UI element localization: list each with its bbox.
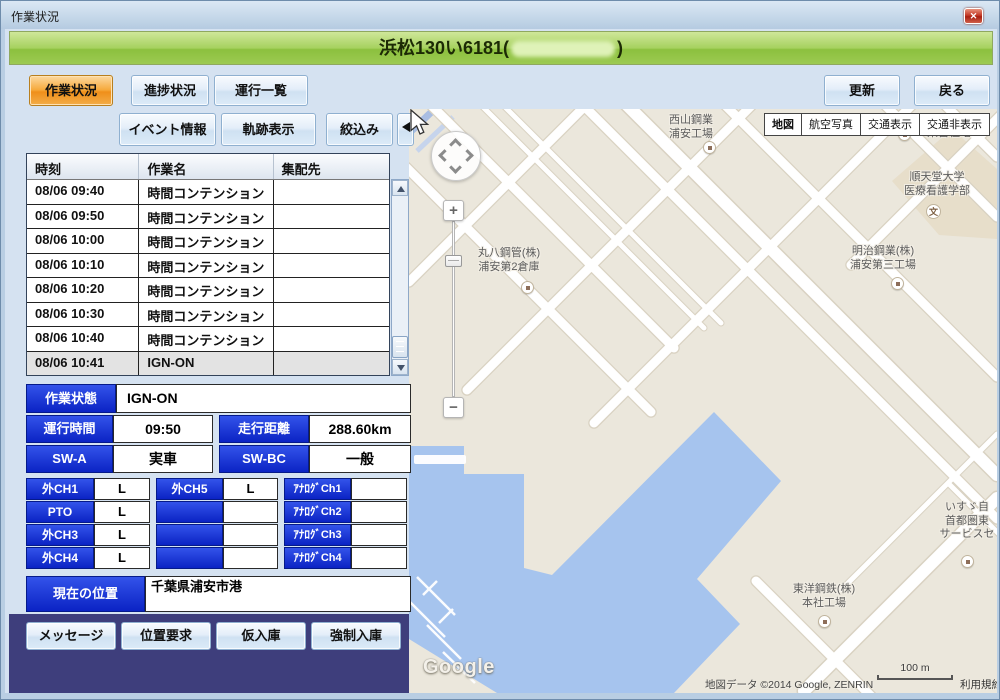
sw-a-value: 実車: [113, 445, 213, 473]
message-button[interactable]: メッセージ: [26, 622, 116, 650]
scale-text: 100 m: [877, 662, 953, 674]
sw-bc-value: 一般: [309, 445, 411, 473]
sw-a-label: SW-A: [26, 445, 113, 473]
table-row[interactable]: 08/06 10:20時間コンテンション: [27, 278, 389, 303]
vehicle-number-suffix: ): [617, 38, 623, 58]
scale-bar: [877, 675, 953, 680]
ch-value: L: [94, 547, 150, 569]
pan-right-icon[interactable]: [461, 149, 474, 162]
poi-icon-nishiyama: [703, 141, 716, 154]
location-value: 千葉県浦安市港: [145, 576, 411, 612]
terms-link[interactable]: 利用規約: [960, 677, 997, 692]
mouse-cursor-icon: [409, 109, 433, 136]
window-content: 浜松130い6181() 作業状況 進捗状況 運行一覧 更新 戻る イベント情報…: [5, 29, 997, 693]
tab-work-status[interactable]: 作業状況: [29, 75, 113, 106]
map-label-nishiyama: 西山鋼業浦安工場: [669, 114, 713, 141]
map-scale: 100 m: [877, 662, 953, 680]
zoom-out-button[interactable]: −: [443, 397, 464, 418]
ch-label: ｱﾅﾛｸﾞCh2: [284, 501, 351, 523]
poi-icon-maruhachi: [521, 281, 534, 294]
map-mode-map[interactable]: 地図: [765, 114, 802, 135]
close-button[interactable]: ✕: [964, 8, 983, 24]
zoom-slider-thumb[interactable]: [445, 255, 462, 267]
ch-label: ｱﾅﾛｸﾞCh3: [284, 524, 351, 546]
event-info-button[interactable]: イベント情報: [119, 113, 216, 146]
map-pan-control[interactable]: [431, 131, 481, 181]
scroll-up-icon: [397, 186, 405, 192]
table-header-row: 時刻 作業名 集配先: [27, 154, 389, 180]
force-storage-button[interactable]: 強制入庫: [311, 622, 401, 650]
temp-storage-button[interactable]: 仮入庫: [216, 622, 306, 650]
poi-icon-meiji: [891, 277, 904, 290]
scroll-up-button[interactable]: [392, 180, 408, 196]
table-row[interactable]: 08/06 10:10時間コンテンション: [27, 254, 389, 279]
pan-left-icon[interactable]: [438, 149, 451, 162]
map-mode-traffic-off[interactable]: 交通非表示: [920, 114, 989, 135]
ch-value: L: [94, 524, 150, 546]
position-request-button[interactable]: 位置要求: [121, 622, 211, 650]
ch-value: L: [94, 478, 150, 500]
map-mode-traffic-on[interactable]: 交通表示: [861, 114, 920, 135]
poi-icon-toyo: [818, 615, 831, 628]
update-button[interactable]: 更新: [824, 75, 900, 106]
masked-text: [511, 41, 615, 57]
location-label: 現在の位置: [26, 576, 145, 612]
ch-label-blank: [156, 524, 223, 546]
ch-label: ｱﾅﾛｸﾞCh4: [284, 547, 351, 569]
ch-label: 外CH4: [26, 547, 94, 569]
map-mode-bar: 地図 航空写真 交通表示 交通非表示: [764, 113, 990, 136]
ch-label-blank: [156, 547, 223, 569]
map-label-juntendo: 順天堂大学医療看護学部: [904, 171, 970, 198]
zoom-in-button[interactable]: +: [443, 200, 464, 221]
distance-value: 288.60km: [309, 415, 411, 443]
map-mode-satellite[interactable]: 航空写真: [802, 114, 861, 135]
google-logo: Google: [423, 656, 495, 679]
tab-progress-status[interactable]: 進捗状況: [131, 75, 209, 106]
filter-button[interactable]: 絞込み: [326, 113, 393, 146]
school-icon: 文: [926, 204, 941, 219]
scrollbar-thumb[interactable]: [392, 336, 408, 358]
ch-value-blank: [223, 524, 278, 546]
ch-value: [351, 501, 407, 523]
ch-value-blank: [223, 501, 278, 523]
sw-bc-label: SW-BC: [219, 445, 309, 473]
scroll-down-icon: [397, 365, 405, 371]
map-label-isuzu: いすゞ自首都圏東サービスセ: [940, 501, 995, 542]
ch-value-blank: [223, 547, 278, 569]
map-copyright: 地図データ ©2014 Google, ZENRIN: [705, 677, 873, 692]
map-label-meiji: 明治鋼業(株)浦安第三工場: [850, 245, 916, 272]
work-state-label: 作業状態: [26, 384, 116, 413]
ch-value: [351, 478, 407, 500]
zoom-slider-track[interactable]: [452, 221, 455, 397]
track-display-button[interactable]: 軌跡表示: [221, 113, 316, 146]
work-state-value: IGN-ON: [116, 384, 411, 413]
map-viewport[interactable]: 地図 航空写真 交通表示 交通非表示 + − 西山鋼業浦安工場 県営住宅: [409, 109, 997, 693]
scroll-down-button[interactable]: [392, 359, 408, 375]
map-label-toyo: 東洋鋼鉄(株)本社工場: [793, 583, 855, 610]
pan-down-icon[interactable]: [449, 161, 462, 174]
col-header-time: 時刻: [27, 154, 139, 179]
table-row[interactable]: 08/06 09:40時間コンテンション: [27, 180, 389, 205]
ch-label: 外CH3: [26, 524, 94, 546]
vehicle-number-prefix: 浜松130い6181(: [379, 38, 509, 58]
pan-up-icon[interactable]: [449, 138, 462, 151]
ch-value: L: [223, 478, 278, 500]
table-row-selected[interactable]: 08/06 10:41IGN-ON: [27, 352, 389, 376]
run-time-label: 運行時間: [26, 415, 113, 443]
table-row[interactable]: 08/06 09:50時間コンテンション: [27, 205, 389, 230]
table-row[interactable]: 08/06 10:40時間コンテンション: [27, 327, 389, 352]
title-bar: 作業状況 ✕: [1, 1, 999, 29]
map-label-maruhachi: 丸八鋼管(株)浦安第2倉庫: [478, 247, 540, 274]
window-title: 作業状況: [11, 8, 59, 25]
distance-label: 走行距離: [219, 415, 309, 443]
back-button[interactable]: 戻る: [914, 75, 990, 106]
ch-label: 外CH5: [156, 478, 223, 500]
ch-label: 外CH1: [26, 478, 94, 500]
run-time-value: 09:50: [113, 415, 213, 443]
app-window: 作業状況 ✕ 浜松130い6181() 作業状況 進捗状況 運行一覧 更新 戻る…: [0, 0, 1000, 700]
event-table: 時刻 作業名 集配先 08/06 09:40時間コンテンション 08/06 09…: [26, 153, 390, 376]
col-header-dest: 集配先: [274, 154, 389, 179]
vehicle-banner: 浜松130い6181(): [9, 31, 993, 65]
ch-value: [351, 547, 407, 569]
table-row[interactable]: 08/06 10:00時間コンテンション: [27, 229, 389, 254]
table-scrollbar[interactable]: [391, 179, 409, 376]
ch-label: PTO: [26, 501, 94, 523]
ch-label-blank: [156, 501, 223, 523]
ch-value: L: [94, 501, 150, 523]
poi-icon-isuzu: [961, 555, 974, 568]
tab-operation-list[interactable]: 運行一覧: [214, 75, 308, 106]
ch-label: ｱﾅﾛｸﾞCh1: [284, 478, 351, 500]
col-header-work: 作業名: [139, 154, 273, 179]
table-row[interactable]: 08/06 10:30時間コンテンション: [27, 303, 389, 328]
ch-value: [351, 524, 407, 546]
footer-panel: メッセージ 位置要求 仮入庫 強制入庫: [9, 614, 409, 693]
